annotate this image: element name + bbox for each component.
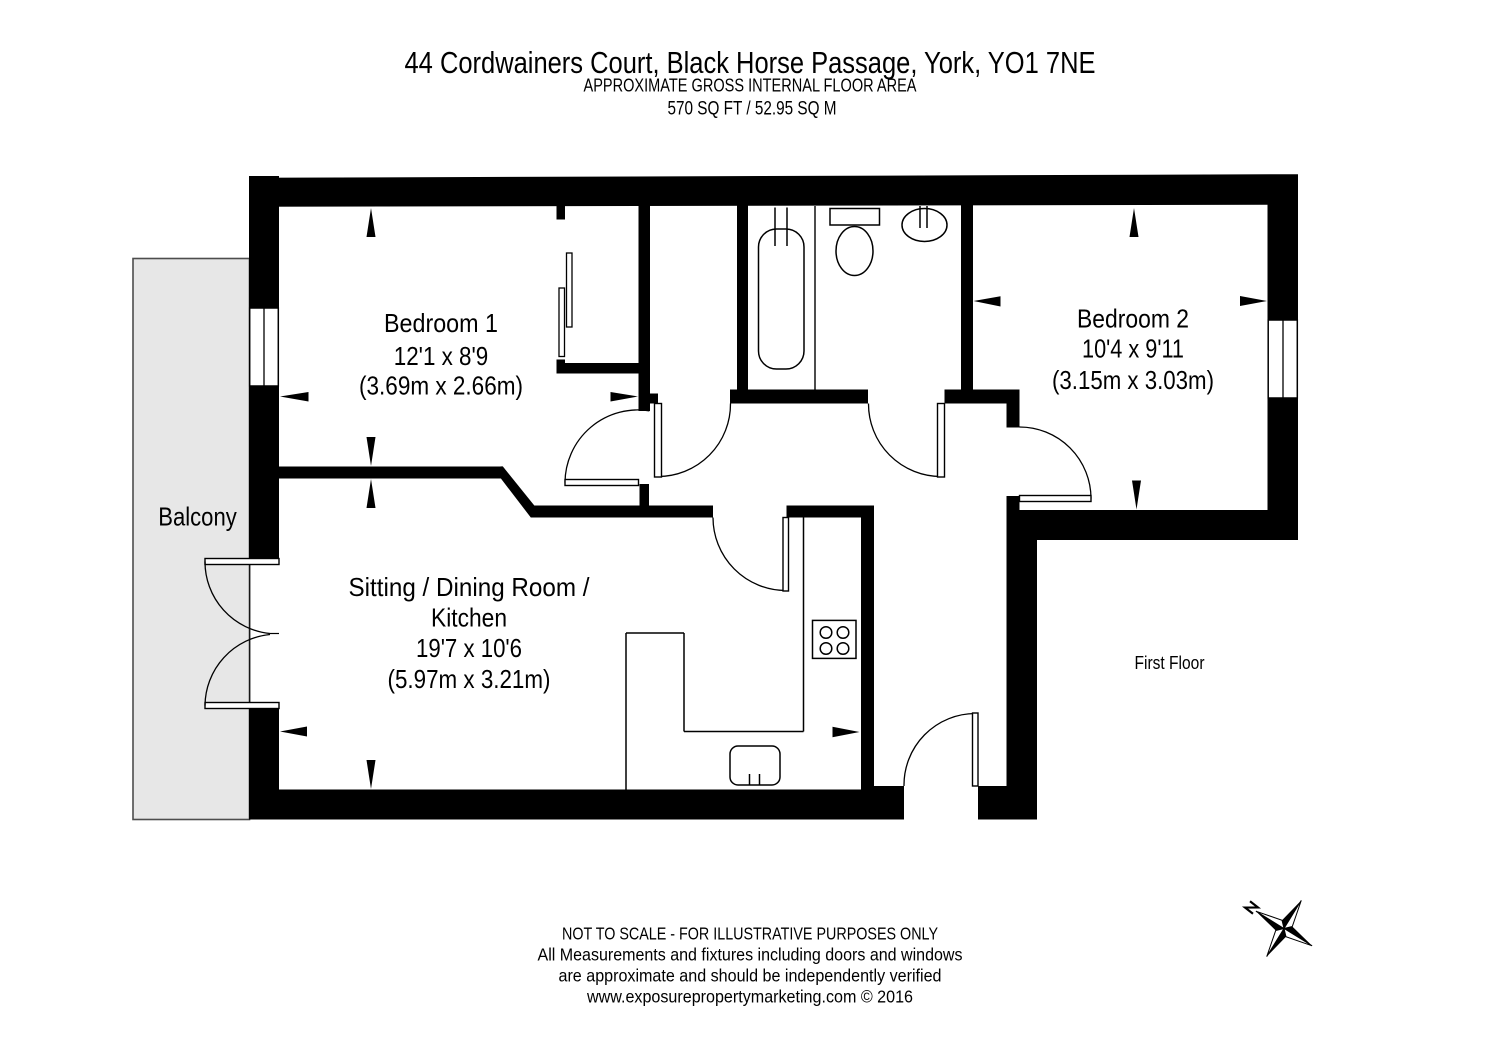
svg-text:are approximate and should be: are approximate and should be independen… (559, 966, 942, 986)
svg-text:10'4 x 9'11: 10'4 x 9'11 (1082, 334, 1184, 364)
svg-text:First Floor: First Floor (1135, 652, 1205, 673)
svg-text:(3.15m x 3.03m): (3.15m x 3.03m) (1052, 365, 1214, 395)
svg-text:570 SQ FT / 52.95 SQ M: 570 SQ FT / 52.95 SQ M (668, 99, 837, 120)
svg-text:NOT TO SCALE - FOR ILLUSTRATIV: NOT TO SCALE - FOR ILLUSTRATIVE PURPOSES… (562, 924, 938, 944)
svg-text:Kitchen: Kitchen (431, 603, 507, 633)
svg-text:Bedroom 1: Bedroom 1 (384, 308, 498, 338)
svg-text:Bedroom 2: Bedroom 2 (1077, 304, 1189, 334)
svg-text:Sitting / Dining Room /: Sitting / Dining Room / (349, 572, 591, 602)
svg-text:19'7 x 10'6: 19'7 x 10'6 (416, 633, 522, 663)
svg-text:All Measurements and fixtures: All Measurements and fixtures including … (538, 945, 963, 965)
svg-text:12'1 x 8'9: 12'1 x 8'9 (394, 341, 489, 371)
svg-text:(3.69m x 2.66m): (3.69m x 2.66m) (359, 371, 523, 401)
svg-text:(5.97m x 3.21m): (5.97m x 3.21m) (388, 664, 551, 694)
svg-text:APPROXIMATE GROSS INTERNAL FLO: APPROXIMATE GROSS INTERNAL FLOOR AREA (584, 75, 918, 96)
svg-text:www.exposurepropertymarketing.: www.exposurepropertymarketing.com © 2016 (586, 987, 913, 1007)
svg-text:Balcony: Balcony (158, 502, 237, 532)
